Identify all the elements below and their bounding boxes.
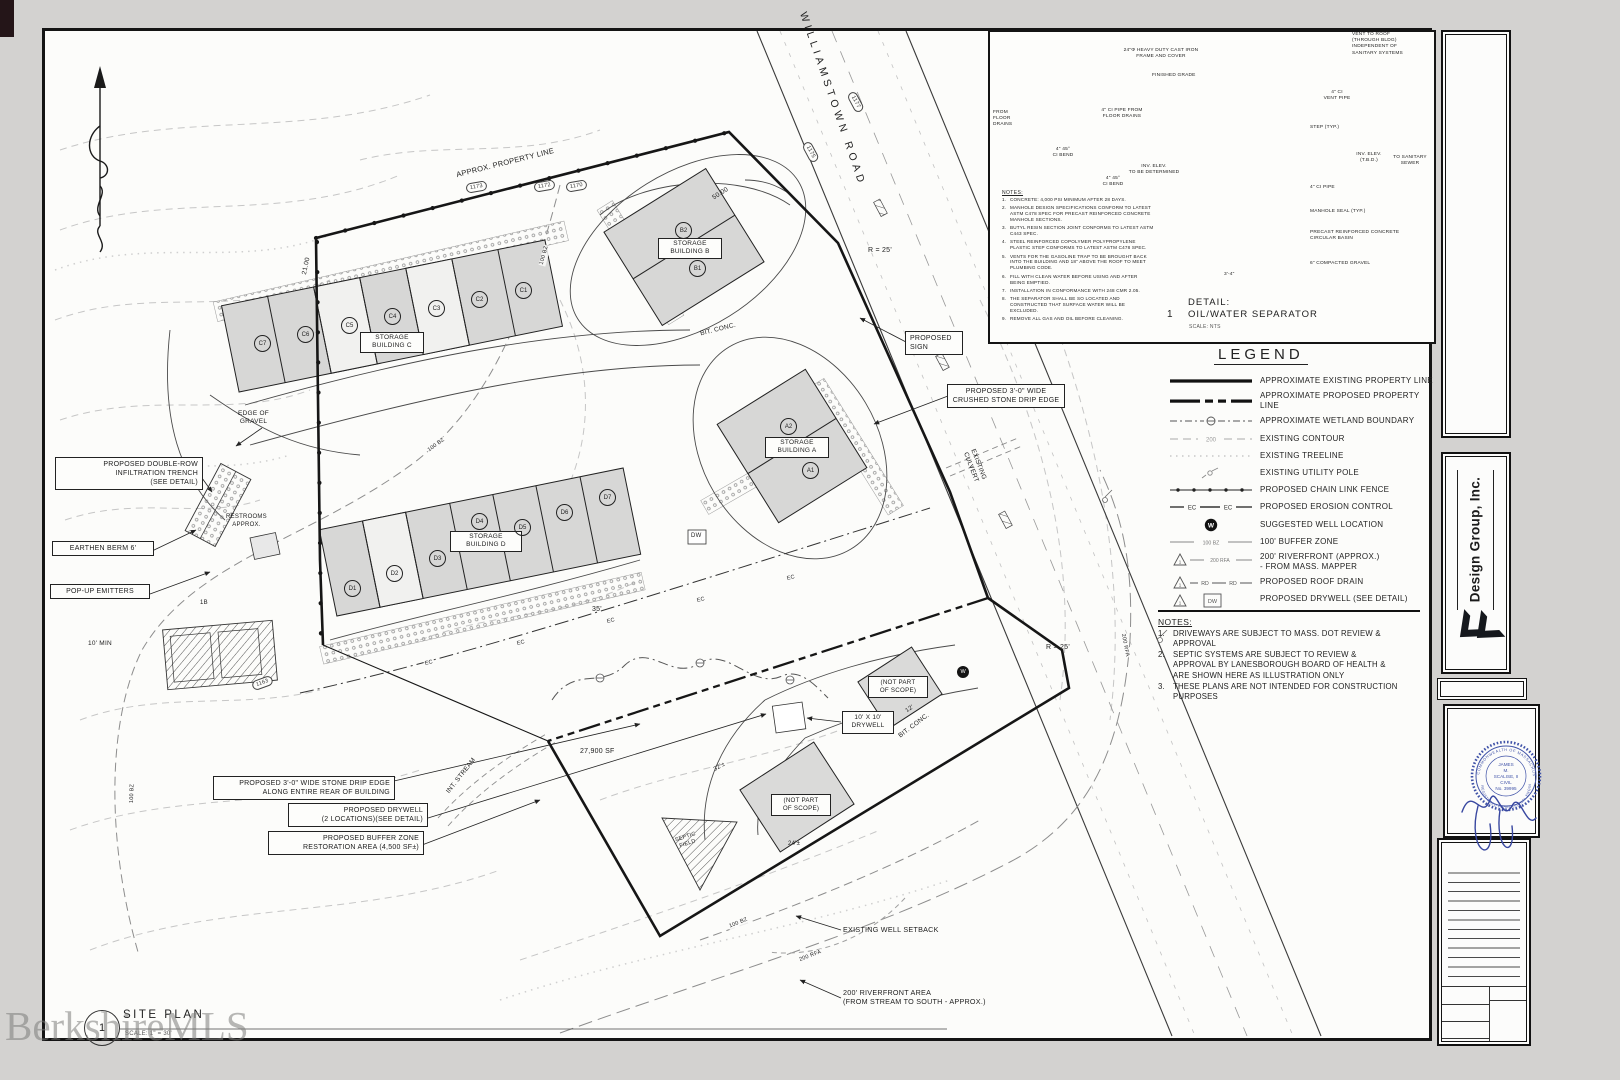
detail-note-item: 5.VENTS FOR THE GASOLINE TRAP TO BE BROU… [1002,254,1154,272]
wetland-boundary-symbol [1168,414,1260,428]
legend-row: 1200 RFA 200' RIVERFRONT (APPROX.) - FRO… [1168,552,1436,572]
detail-inv2-label: INV. ELEV. (T.B.D.) [1352,152,1386,164]
legend: LEGEND APPROXIMATE EXISTING PROPERTY LIN… [1168,346,1436,609]
detail-step-label: STEP (TYP.) [1310,125,1339,131]
detail-note-item: 2.MANHOLE DESIGN SPECIFICATIONS CONFORM … [1002,205,1154,223]
legend-title: LEGEND [1214,346,1308,365]
unit-label: D5 [514,519,531,536]
info-grid-line [1442,1004,1489,1005]
drywell-ten-callout: 10' X 10' DRYWELL [842,711,894,734]
svg-text:JAMES: JAMES [1498,762,1513,767]
detail-subtitle: OIL/WATER SEPARATOR [1188,309,1318,321]
legend-row: EXISTING TREELINE [1168,449,1436,463]
detail-cover-label: 24"Φ HEAVY DUTY CAST IRON FRAME AND COVE… [1116,48,1206,60]
unit-label: A1 [802,462,819,479]
buffer-restoration-callout: PROPOSED BUFFER ZONE RESTORATION AREA (4… [268,831,424,855]
svg-text:EC: EC [1188,506,1197,512]
unit-label: A2 [780,418,797,435]
svg-text:200: 200 [1206,437,1217,443]
detail-note-item: 6.FILL WITH CLEAN WATER BEFORE USING AND… [1002,274,1154,286]
detail-note-item: 4.STEEL REINFORCED COPOLYMER POLYPROPYLE… [1002,239,1154,251]
existing-property-line-symbol [1168,374,1260,388]
proposed-property-line-symbol [1168,394,1260,408]
drywell-symbol: 1DW [1168,592,1260,606]
detail-pipe-from-label: 4" CI PIPE FROM FLOOR DRAINS [1092,108,1152,120]
riverfront-symbol: 1200 RFA [1168,552,1260,566]
well-symbol-label: W [961,669,966,676]
svg-text:EC: EC [1224,506,1233,512]
mls-watermark: BerkshireMLS [5,1002,249,1050]
company-name: Design Group, Inc. [1468,465,1483,615]
building-d-label: STORAGE BUILDING D [450,531,522,552]
detail-scale: SCALE: NTS [1189,324,1221,330]
unit-label: D6 [556,504,573,521]
company-rule [1457,470,1458,610]
detail-note-item: 8.THE SEPARATOR SHALL BE SO LOCATED AND … [1002,296,1154,314]
titleblock-panel-strip [1437,678,1527,700]
detail-sewer-label: TO SANITARY SEWER [1392,155,1428,167]
unit-label: D7 [599,489,616,506]
legend-row: 100 BZ 100' BUFFER ZONE [1168,535,1436,549]
info-grid-line [1489,1000,1526,1001]
legend-row: 1DW PROPOSED DRYWELL (SEE DETAIL) [1168,592,1436,606]
detail-from-drains-label: FROM FLOOR DRAINS [993,110,1012,129]
svg-text:100 BZ: 100 BZ [1203,540,1220,546]
restrooms-label: RESTROOMS APPROX. [226,514,267,529]
svg-text:RD: RD [1201,581,1209,587]
legend-row: W SUGGESTED WELL LOCATION [1168,518,1436,532]
buffer-zone-tag: 100 BZ [129,783,137,804]
existing-treeline-symbol [1168,449,1260,463]
unit-label: D1 [344,580,361,597]
detail-gravel-label: 6" COMPACTED GRAVEL [1310,261,1370,267]
chain-link-fence-symbol [1168,483,1260,497]
site-note-item: 1.DRIVEWAYS ARE SUBJECT TO MASS. DOT REV… [1158,629,1420,649]
detail-number: 1 [1167,309,1173,322]
svg-text:DW: DW [1208,599,1218,605]
building-b-label: STORAGE BUILDING B [658,238,722,259]
legend-row: APPROXIMATE PROPOSED PROPERTY LINE [1168,391,1436,411]
unit-label: B2 [675,222,692,239]
not-in-scope-callout: (NOT PART OF SCOPE) [868,676,928,698]
min-clearance-label: 10' MIN [88,640,112,648]
not-in-scope-callout: (NOT PART OF SCOPE) [771,794,831,816]
radius-label: R = 25' [868,247,892,256]
svg-text:200 RFA: 200 RFA [1210,558,1230,564]
company-rule [1493,470,1494,610]
unit-label: C5 [341,317,358,334]
buffer-zone-symbol: 100 BZ [1168,535,1260,549]
detail-vent-roof-label: VENT TO ROOF (THROUGH BLDG) INDEPENDENT … [1352,32,1403,57]
well-setback-label: EXISTING WELL SETBACK [843,925,939,934]
svg-text:1: 1 [1179,601,1182,606]
scan-corner-mark [0,0,14,37]
area-label: 27,900 SF [580,748,615,757]
unit-label: C1 [515,282,532,299]
detail-bend-label: 4" 45° CI BEND [1098,176,1128,188]
svg-text:COMMONWEALTH OF MASSACHUSETTS: COMMONWEALTH OF MASSACHUSETTS [1443,703,1536,777]
detail-note-item: 1.CONCRETE: 4,000 PSI MINIMUM AFTER 28 D… [1002,197,1154,203]
titleblock-panel-company: Design Group, Inc. [1441,452,1511,674]
pop-up-emitters-callout: POP-UP EMITTERS [50,584,150,599]
svg-text:1: 1 [1179,583,1182,588]
drywell-two-callout: PROPOSED DRYWELL (2 LOCATIONS)(SEE DETAI… [288,803,428,827]
building-c-label: STORAGE BUILDING C [360,332,424,353]
info-grid-line [1442,1021,1489,1022]
unit-label: B1 [689,260,706,277]
detail-title: DETAIL: [1188,297,1230,309]
legend-row: ECEC PROPOSED EROSION CONTROL [1168,500,1436,514]
detail-pipe4-label: 4" CI PIPE [1310,185,1335,191]
site-note-item: 2.SEPTIC SYSTEMS ARE SUBJECT TO REVIEW &… [1158,650,1420,680]
septic-tag: 1B [200,600,208,608]
riverfront-label: 200' RIVERFRONT AREA (FROM STREAM TO SOU… [843,988,986,1006]
infiltration-trench-callout: PROPOSED DOUBLE-ROW INFILTRATION TRENCH … [55,457,203,490]
detail-note-item: 3.BUTYL RESIN SECTION JOINT CONFORMS TO … [1002,225,1154,237]
engineer-signature [1448,770,1558,880]
roof-drain-symbol: 1RDRD [1168,575,1260,589]
detail-notes-title: NOTES: [1002,190,1154,196]
radius-label: R = 25' [1046,644,1070,653]
stone-drip-edge-callout: PROPOSED 3'-0" WIDE STONE DRIP EDGE ALON… [213,776,395,800]
info-grid-line [1442,1038,1489,1039]
drywell-tag: DW [691,533,702,541]
detail-grade-label: FINISHED GRADE [1152,73,1196,79]
unit-label: C2 [471,291,488,308]
legend-row: APPROXIMATE WETLAND BOUNDARY [1168,414,1436,428]
edge-of-gravel-label: EDGE OF GRAVEL [238,410,269,426]
site-notes-title: NOTES: [1158,617,1420,627]
detail-note-item: 7.INSTALLATION IN CONFORMANCE WITH 248 C… [1002,288,1154,294]
unit-label: D4 [471,513,488,530]
building-a-label: STORAGE BUILDING A [765,437,829,458]
proposed-sign-callout: PROPOSED SIGN [905,331,963,355]
unit-label: C6 [297,326,314,343]
detail-vent-pipe-label: 4" CI VENT PIPE [1322,90,1352,102]
detail-seal-label: MANHOLE SEAL (TYP.) [1310,209,1366,215]
detail-inv-label: INV. ELEV. TO BE DETERMINED [1126,164,1182,176]
dimension-label: 35' [592,606,602,615]
unit-label: C3 [428,300,445,317]
legend-row: APPROXIMATE EXISTING PROPERTY LINE [1168,374,1436,388]
detail-note-item: 9.REMOVE ALL GAS AND OIL BEFORE CLEANING… [1002,316,1154,322]
titleblock-panel-blank [1441,30,1511,438]
svg-text:W: W [1208,522,1215,529]
svg-text:RD: RD [1229,581,1237,587]
legend-row: 1RDRD PROPOSED ROOF DRAIN [1168,575,1436,589]
info-grid-line [1442,986,1526,987]
info-ruled-lines [1448,864,1520,982]
dimension-label: 24'± [788,841,800,849]
well-location-symbol: W [1168,518,1260,532]
detail-notes: NOTES: 1.CONCRETE: 4,000 PSI MINIMUM AFT… [1002,190,1154,324]
detail-basin-label: PRECAST REINFORCED CONCRETE CIRCULAR BAS… [1310,230,1399,242]
earthen-berm-callout: EARTHEN BERM 6' [52,541,154,556]
detail-dim-label: 3'-4" [1224,272,1235,278]
utility-pole-symbol [1168,466,1260,480]
crushed-stone-callout: PROPOSED 3'-0" WIDE CRUSHED STONE DRIP E… [947,384,1065,408]
existing-contour-symbol: 200 [1168,432,1260,446]
info-grid-line [1489,986,1490,1041]
scanned-plan-background: APPROX. PROPERTY LINE WILLIAMSTOWN ROAD … [0,0,1620,1080]
legend-row: EXISTING UTILITY POLE [1168,466,1436,480]
unit-label: C4 [384,308,401,325]
unit-label: D3 [429,550,446,567]
site-notes: NOTES: 1.DRIVEWAYS ARE SUBJECT TO MASS. … [1158,610,1420,703]
unit-label: C7 [254,335,271,352]
legend-row: 200 EXISTING CONTOUR [1168,432,1436,446]
unit-label: D2 [386,565,403,582]
svg-text:1: 1 [1179,559,1182,564]
legend-row: PROPOSED CHAIN LINK FENCE [1168,483,1436,497]
detail-bend-label: 4" 45° CI BEND [1048,147,1078,159]
erosion-control-symbol: ECEC [1168,500,1260,514]
site-note-item: 3.THESE PLANS ARE NOT INTENDED FOR CONST… [1158,682,1420,702]
